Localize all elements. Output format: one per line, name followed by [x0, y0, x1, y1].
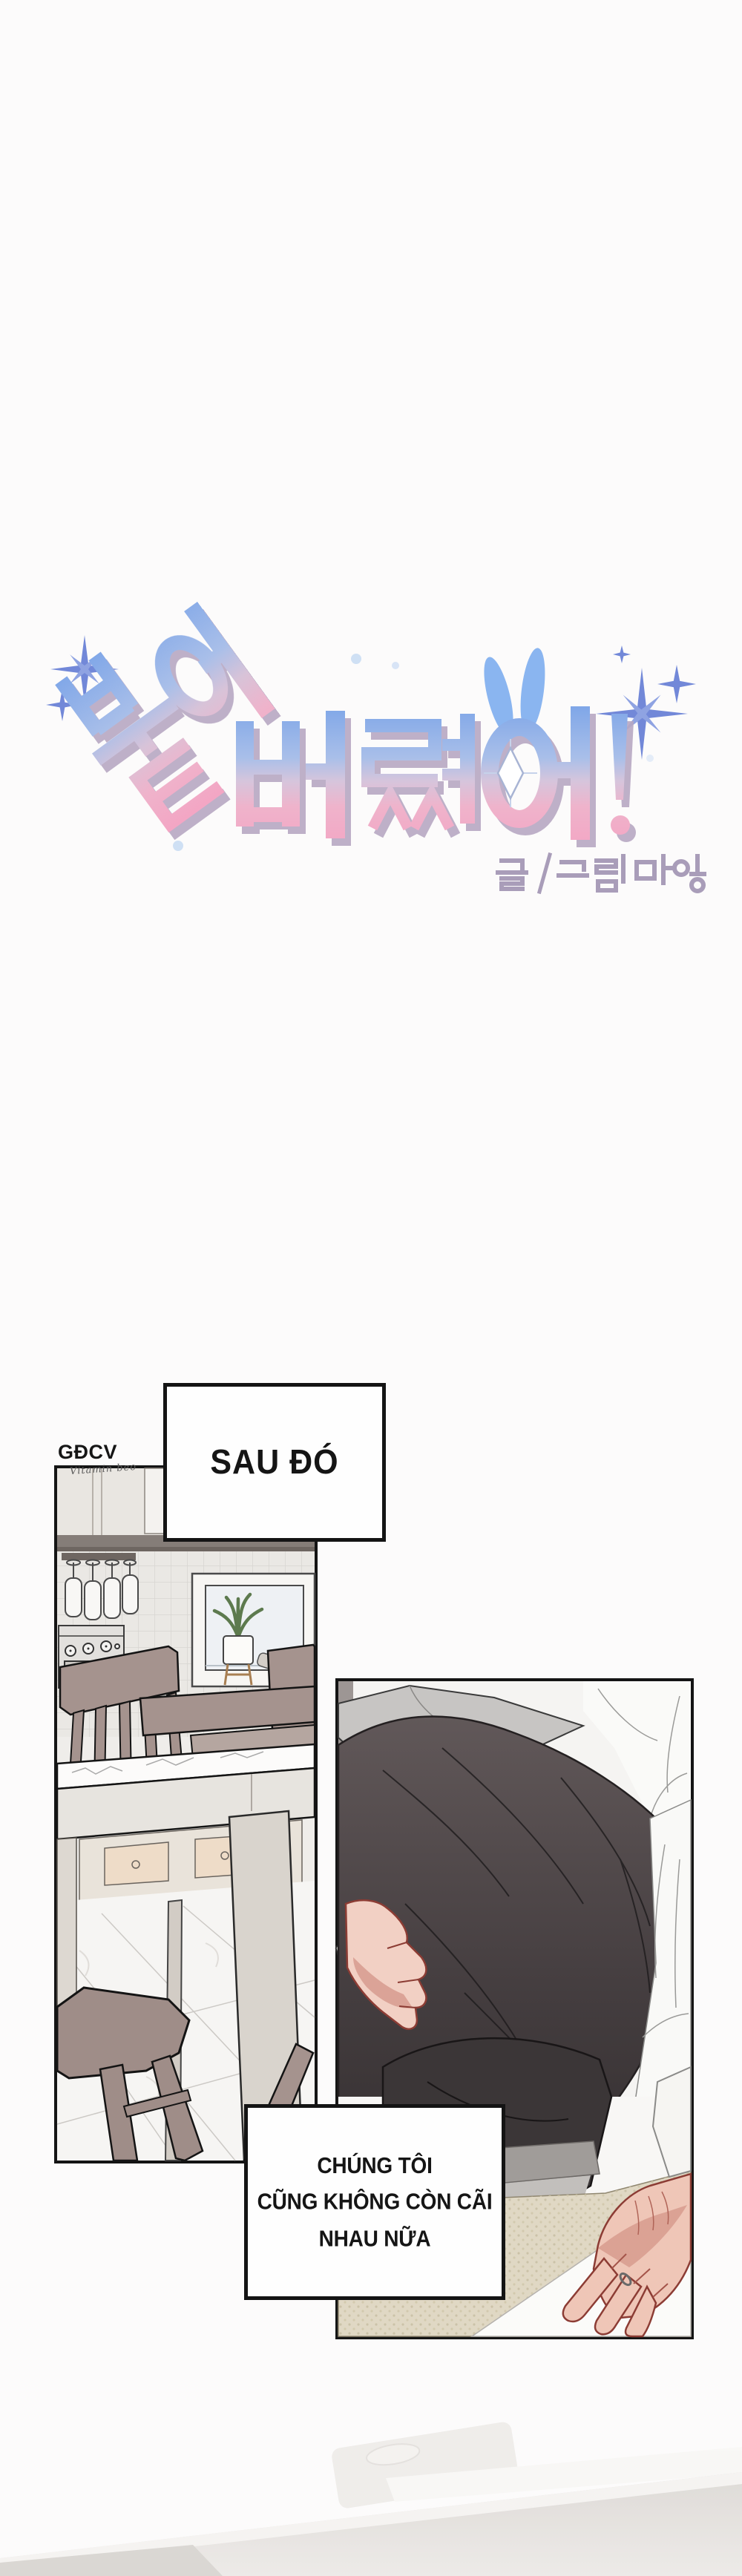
- caption-text: SAU ĐÓ: [210, 1443, 338, 1482]
- title-line1-text: 붙어: [0, 0, 1, 1]
- caption-line: CHÚNG TÔI: [257, 2148, 493, 2184]
- kitchen-art: [57, 1468, 315, 2161]
- title-logo: [0, 579, 742, 935]
- watermark-signature: Vitamin beo: [70, 1462, 137, 1477]
- title-credit-text: 글 / 그림 마왕: [0, 0, 1, 1]
- caption-line: CŨNG KHÔNG CÒN CÃI: [257, 2184, 493, 2220]
- caption-line: NHAU NỮA: [257, 2220, 493, 2256]
- caption-box-sau-do: SAU ĐÓ: [163, 1383, 386, 1542]
- webtoon-page: 붙어 버렸어! 글 / 그림 마왕: [0, 0, 742, 2576]
- scanlation-watermark: GĐCV Vitamin beo: [56, 1442, 137, 1475]
- title-credit: [498, 855, 704, 892]
- faint-next-panel-preview: [0, 2404, 742, 2576]
- caption-text: CHÚNG TÔI CŨNG KHÔNG CÒN CÃI NHAU NỮA: [257, 2148, 493, 2257]
- sparkle-cluster-right: [596, 645, 696, 760]
- caption-box-chung-toi: CHÚNG TÔI CŨNG KHÔNG CÒN CÃI NHAU NỮA: [244, 2104, 505, 2300]
- panel-kitchen: [54, 1465, 318, 2163]
- watermark-logo: GĐCV: [56, 1442, 137, 1462]
- title-line2-text: 버렸어!: [0, 0, 1, 1]
- wine-glass-rack: [62, 1553, 138, 1620]
